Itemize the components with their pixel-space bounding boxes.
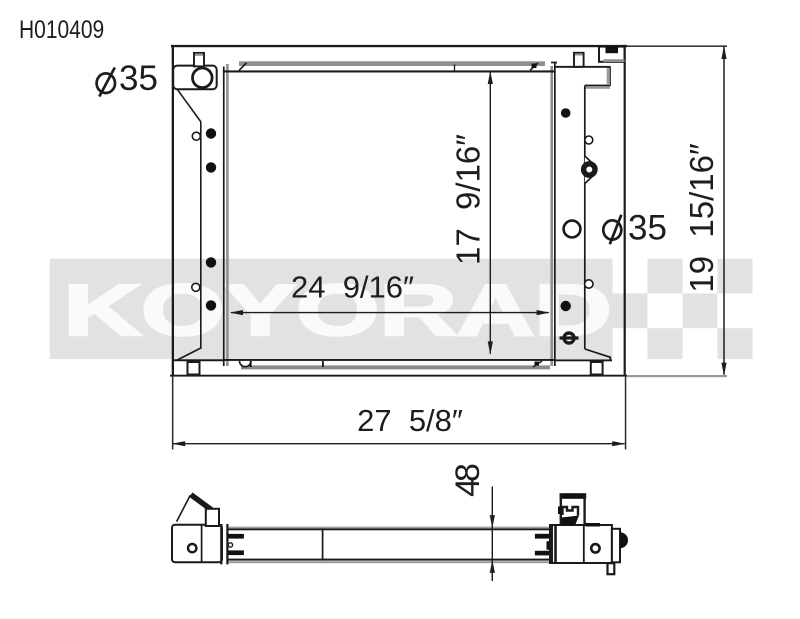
svg-text:24 9/16″: 24 9/16″ (291, 269, 414, 304)
svg-text:17 9/16″: 17 9/16″ (450, 134, 487, 265)
svg-text:27 5/8″: 27 5/8″ (357, 403, 463, 438)
svg-text:35: 35 (119, 59, 158, 98)
svg-text:35: 35 (628, 209, 667, 248)
svg-text:H010409: H010409 (19, 15, 104, 43)
svg-text:48: 48 (449, 464, 487, 497)
svg-text:19 15/16″: 19 15/16″ (683, 143, 720, 293)
